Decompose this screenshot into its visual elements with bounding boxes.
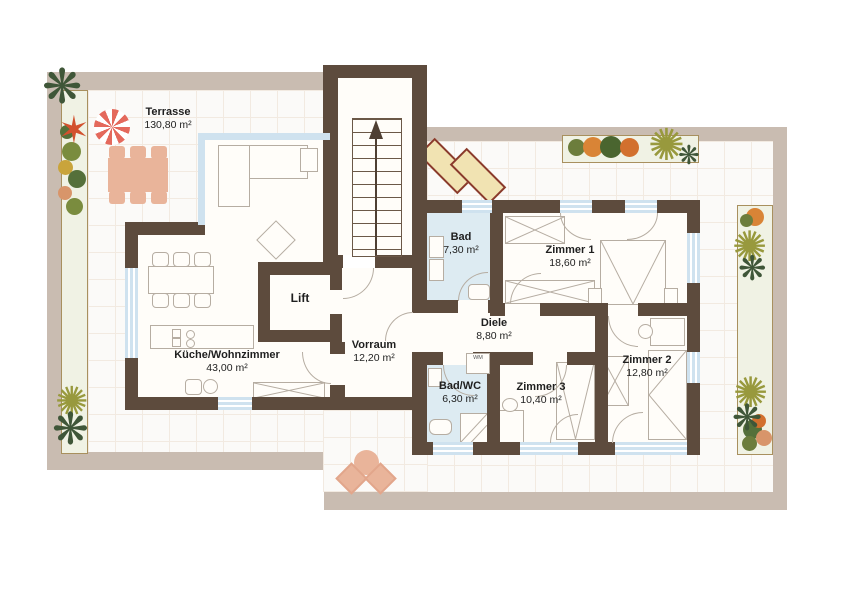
wall-bad-zimmer1 bbox=[490, 213, 503, 313]
chair bbox=[173, 293, 190, 308]
nightstand bbox=[664, 288, 678, 304]
red-plant-icon bbox=[58, 112, 90, 150]
palm-icon bbox=[52, 408, 89, 452]
bush-icon bbox=[742, 436, 757, 451]
room-area: 12,80 m² bbox=[587, 367, 707, 380]
floor-plan: WM bbox=[0, 0, 842, 595]
room-label-kueche-wohnzimmer: Küche/Wohnzimmer 43,00 m² bbox=[147, 349, 307, 375]
wall-zimmer1-bottom bbox=[490, 303, 505, 316]
terrace-door-zimmer2 bbox=[615, 442, 687, 455]
window-living bbox=[125, 268, 138, 358]
terrace-chair bbox=[130, 191, 146, 204]
room-label-bad-wc: Bad/WC 6,30 m² bbox=[415, 380, 505, 406]
stair-direction-line bbox=[375, 136, 377, 255]
window-bad bbox=[462, 200, 492, 213]
room-label-lift: Lift bbox=[270, 292, 330, 305]
palm-icon bbox=[42, 64, 82, 112]
desk bbox=[496, 410, 524, 443]
wall-living-vorraum bbox=[330, 385, 345, 397]
terrace-chair bbox=[109, 146, 125, 159]
bathroom-sink bbox=[429, 259, 444, 281]
room-name: Zimmer 2 bbox=[587, 354, 707, 367]
terrace-chair bbox=[151, 146, 167, 159]
chair bbox=[194, 252, 211, 267]
room-name: Lift bbox=[270, 292, 330, 305]
wall-top-living bbox=[125, 222, 205, 235]
room-label-zimmer2: Zimmer 2 12,80 m² bbox=[587, 354, 707, 380]
wardrobe bbox=[505, 216, 565, 244]
terrace-border-top-left bbox=[47, 72, 323, 90]
palm-icon bbox=[678, 142, 700, 168]
shower bbox=[460, 413, 488, 443]
cooktop-burner bbox=[186, 339, 195, 348]
terrace-door-zimmer1 bbox=[560, 200, 592, 213]
washing-machine-label: WM bbox=[473, 355, 483, 361]
chair bbox=[152, 252, 169, 267]
wall-bad-bottom bbox=[412, 300, 458, 313]
desk-chair bbox=[638, 324, 653, 339]
sideboard bbox=[185, 379, 202, 395]
terrace-chair bbox=[109, 191, 125, 204]
room-name: Küche/Wohnzimmer bbox=[147, 349, 307, 362]
room-label-vorraum: Vorraum 12,20 m² bbox=[324, 339, 424, 365]
terrace-border-right bbox=[773, 127, 787, 510]
toilet bbox=[429, 419, 452, 435]
stair-arrow-icon bbox=[369, 120, 383, 139]
wall-zimmer1-bottom bbox=[540, 303, 608, 316]
palm-icon bbox=[738, 252, 767, 286]
sink bbox=[172, 338, 181, 347]
bush-icon bbox=[66, 198, 83, 215]
nightstand bbox=[588, 288, 602, 304]
terrace-door-living bbox=[218, 397, 252, 410]
room-label-bad: Bad 7,30 m² bbox=[421, 231, 501, 257]
window-winter-garden-top bbox=[198, 133, 330, 140]
washing-machine: WM bbox=[466, 353, 490, 374]
bush-icon bbox=[620, 138, 639, 157]
window-winter-garden-left bbox=[198, 133, 205, 225]
dining-table bbox=[148, 266, 214, 294]
terrace-border-bottom-left bbox=[47, 452, 338, 470]
room-name: Vorraum bbox=[324, 339, 424, 352]
room-area: 18,60 m² bbox=[510, 257, 630, 270]
chair bbox=[173, 252, 190, 267]
room-area: 8,80 m² bbox=[444, 330, 544, 343]
wall-diele-bottom bbox=[427, 352, 443, 365]
terrace-border-bottom-right bbox=[324, 492, 787, 510]
stairwell-wall-left bbox=[323, 65, 338, 268]
room-label-zimmer1: Zimmer 1 18,60 m² bbox=[510, 244, 630, 270]
chair bbox=[152, 293, 169, 308]
sofa-chaise bbox=[218, 145, 250, 207]
room-name: Bad bbox=[421, 231, 501, 244]
terrace-door-zimmer1 bbox=[625, 200, 657, 213]
bush-icon bbox=[600, 136, 622, 158]
room-name: Zimmer 1 bbox=[510, 244, 630, 257]
room-area: 7,30 m² bbox=[421, 244, 501, 257]
terrace-chair bbox=[130, 146, 146, 159]
side-table bbox=[300, 148, 318, 172]
room-label-terrasse: Terrasse 130,80 m² bbox=[108, 106, 228, 132]
room-area: 130,80 m² bbox=[108, 119, 228, 132]
room-name: Terrasse bbox=[108, 106, 228, 119]
room-area: 12,20 m² bbox=[324, 352, 424, 365]
kitchen-island bbox=[150, 325, 254, 349]
terrace-table bbox=[108, 158, 168, 192]
room-label-diele: Diele 8,80 m² bbox=[444, 317, 544, 343]
room-area: 6,30 m² bbox=[415, 393, 505, 406]
sideboard bbox=[203, 379, 218, 394]
room-area: 43,00 m² bbox=[147, 362, 307, 375]
cooktop-burner bbox=[186, 330, 195, 339]
chair bbox=[194, 293, 211, 308]
terrace-chair bbox=[151, 191, 167, 204]
palm-icon bbox=[732, 400, 762, 436]
desk bbox=[650, 318, 685, 346]
sink bbox=[172, 329, 181, 338]
terrace-door-zimmer3 bbox=[520, 442, 578, 455]
wall-zimmer1-bottom bbox=[638, 303, 687, 316]
room-name: Diele bbox=[444, 317, 544, 330]
window-zimmer1 bbox=[687, 233, 700, 283]
window-badwc bbox=[433, 442, 473, 455]
room-name: Bad/WC bbox=[415, 380, 505, 393]
bush-icon bbox=[68, 170, 86, 188]
wall-bottom-living bbox=[125, 397, 427, 410]
